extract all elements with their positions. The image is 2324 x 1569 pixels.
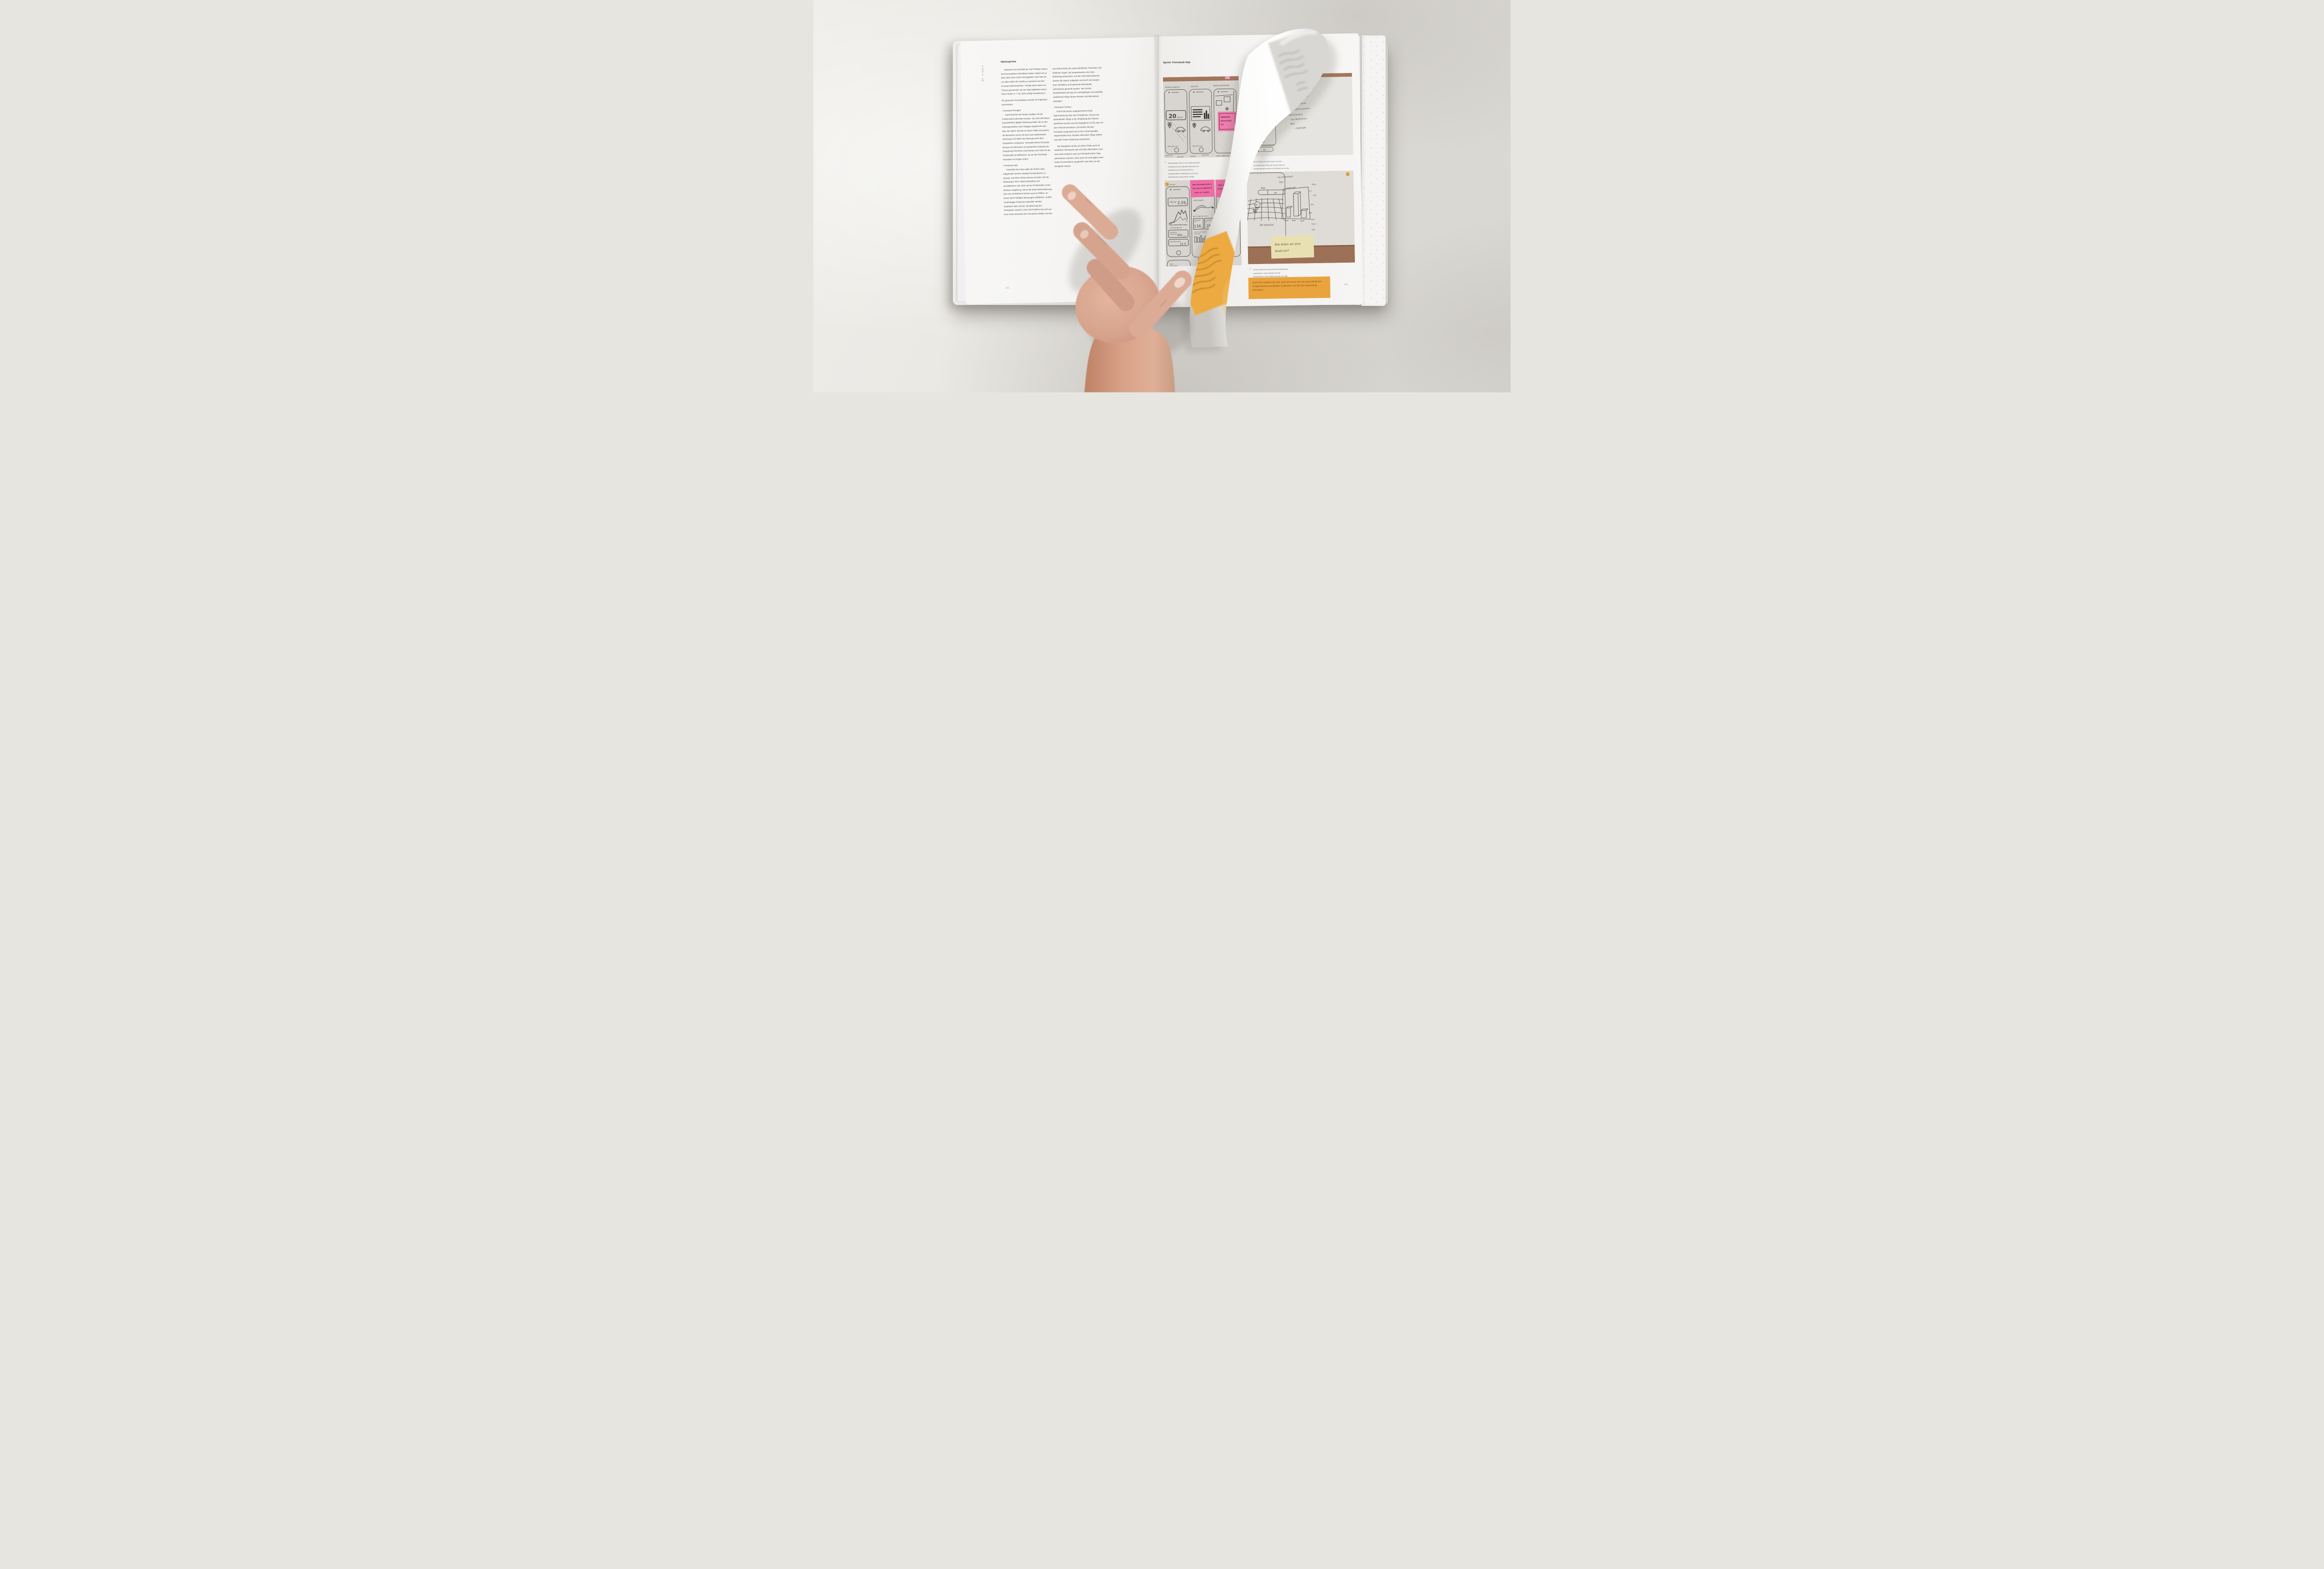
orange-pin xyxy=(1346,172,1349,176)
right-page-heading: Sprint: Feinstaub-App xyxy=(1163,61,1190,64)
sticky-text: ANALYSE xyxy=(1221,116,1230,118)
up-arrow-icon: ↑ xyxy=(1250,268,1251,271)
svg-text:CHALLENGE: CHALLENGE xyxy=(1170,265,1178,266)
svg-text:Stadt ein?: Stadt ein? xyxy=(1275,249,1289,253)
sketch-board-b: 30 Ortes · Umkreis Von 10– in Bsp. · gem… xyxy=(1245,73,1353,157)
svg-text:FEINSTAUB: FEINSTAUB xyxy=(1194,233,1201,235)
svg-text:DIESE WOCHE: DIESE WOCHE xyxy=(1194,199,1204,201)
pink-tab xyxy=(1225,76,1230,79)
svg-text:KM: KM xyxy=(1206,221,1207,223)
svg-text:● AUTO ● OHNE AUTO: ● AUTO ● OHNE AUTO xyxy=(1194,215,1208,217)
svg-text:Fein-: Fein- xyxy=(1312,223,1316,225)
sticky-text: -20 xyxy=(1220,123,1223,126)
sketch-label: AN SICHT xyxy=(1177,156,1183,158)
orange-pin xyxy=(1165,183,1169,186)
svg-text:25: 25 xyxy=(1207,224,1211,228)
svg-text:Mics: Mics xyxy=(1312,183,1316,185)
svg-text:15 €: 15 € xyxy=(1180,242,1186,245)
svg-text:Bsp.: Bsp. xyxy=(1287,99,1291,101)
sketch-label: KARTEN SWITCH/PIN xyxy=(1213,85,1229,87)
sketch-board-a: VISUELLE ANSICHT INFO PIN KARTEN SWITCH/… xyxy=(1163,76,1240,159)
sketch-label: STARTSCR. xyxy=(1165,155,1172,157)
svg-text:3D: 3D xyxy=(1274,192,1277,194)
corner-label: Konzept xyxy=(1169,184,1175,185)
svg-text:10: 10 xyxy=(1226,210,1229,213)
svg-text:300: 300 xyxy=(1177,234,1182,237)
left-book-page: 02 Create Ideensprints Nachdem wir inner… xyxy=(960,37,1160,305)
photo-3d-map-sketch: · Von Wohnheim Bild · challenge Mics m³ … xyxy=(1247,171,1355,265)
svg-text:Bild: Bild xyxy=(1279,181,1283,184)
svg-text:STRECKE: STRECKE xyxy=(1169,201,1176,203)
svg-text:– fre: – fre xyxy=(1309,203,1314,205)
svg-text:km: km xyxy=(1211,227,1213,229)
paragraph: Damit könnten die Nutzer häufiger mit de… xyxy=(1002,112,1051,162)
up-arrow-icon: ↑ xyxy=(1165,161,1166,165)
pink-sticky-note: Was wird getrackt & wie wird verglichen?… xyxy=(1190,179,1215,198)
3d-ansicht-label: 3D Ansicht xyxy=(1260,224,1274,227)
svg-text:Ortes: Ortes xyxy=(1281,85,1287,88)
svg-text:sho: sho xyxy=(1313,194,1317,196)
svg-text:km: km xyxy=(1185,203,1188,205)
paragraph: Durch die bereits angesprochene breite D… xyxy=(1053,109,1103,142)
photo-handwritten-notes: 30 Ortes · Umkreis Von 10– in Bsp. · gem… xyxy=(1245,73,1353,157)
svg-text:km: km xyxy=(1201,227,1202,229)
left-page-column-1: Nachdem wir innerhalb der Top Findings u… xyxy=(1001,67,1052,219)
left-page-column-2: und andererseits die unterschiedlichen P… xyxy=(1052,66,1104,171)
sketch-label: AR-SICHT xyxy=(1202,154,1208,156)
paragraph: Innerhalb einer App sollen die Nutzer da… xyxy=(1003,167,1052,217)
svg-text:berechnet?: berechnet? xyxy=(1218,188,1229,190)
pink-sticky-note xyxy=(1198,258,1211,266)
page-number-right: 185 xyxy=(1344,283,1348,285)
bubble-value: 20 xyxy=(1255,204,1258,206)
yellow-sticky-note: Wie teilen wir eine Stadt ein? xyxy=(1271,235,1314,258)
forearm xyxy=(1084,324,1175,392)
svg-text:FEINSTAUB: FEINSTAUB xyxy=(1170,233,1177,235)
svg-text:Bild: Bild xyxy=(1290,123,1294,126)
photo-wireframes-camera: VISUELLE ANSICHT INFO PIN KARTEN SWITCH/… xyxy=(1163,76,1240,159)
book-photo-scene: 02 Create Ideensprints Nachdem wir inner… xyxy=(813,0,1511,392)
highlight-box: Durch den Vergleich der Orte, kann der N… xyxy=(1248,277,1331,299)
unit: μm/m³ xyxy=(1177,116,1183,119)
left-page-heading: Ideensprints xyxy=(1001,60,1016,64)
book-spine-crease xyxy=(1153,35,1162,303)
pink-sticky-note: Tägl. Anzeige wie berechnet? xyxy=(1215,179,1239,198)
svg-text:KM: KM xyxy=(1195,221,1196,223)
photo-wireframes-stats: Konzept STRECKE 2,59 km xyxy=(1164,179,1241,267)
sketch-board-c: Konzept STRECKE 2,59 km xyxy=(1164,179,1241,267)
paragraph: und andererseits die unterschiedlichen P… xyxy=(1052,66,1103,104)
right-book-page: Sprint: Feinstaub-App VISUELLE ANSICHT I… xyxy=(1155,33,1363,308)
svg-text:m³: m³ xyxy=(1309,190,1312,192)
svg-text:○ FAHRRAD ● AUTO: ○ FAHRRAD ● AUTO xyxy=(1169,227,1182,229)
svg-text:MEHR PRODUZIERTER: MEHR PRODUZIERTER xyxy=(1194,232,1207,233)
svg-text:ERREICHTE: ERREICHTE xyxy=(1224,207,1230,209)
svg-text:das: das xyxy=(1312,228,1315,231)
page-number-left: 182 xyxy=(1005,286,1010,289)
svg-text:Tägl. Anzeige wie: Tägl. Anzeige wie xyxy=(1218,184,1235,186)
svg-text:GESPARTER: GESPARTER xyxy=(1170,232,1177,233)
caption-camera-mode: ↑ Kameramodus mit der Live-Visualisierun… xyxy=(1168,161,1201,179)
sketch-label: INFO PIN xyxy=(1191,86,1198,87)
svg-text:sind: sind xyxy=(1311,218,1315,220)
tabs-label: PM10 PM2.5 NOx xyxy=(1168,146,1178,147)
tabs-label: PM10 PM2.5 NOx xyxy=(1192,145,1203,147)
svg-text:136: 136 xyxy=(1194,224,1201,228)
dotted-endpaper xyxy=(1361,35,1386,306)
chapter-side-label: 02 Create xyxy=(981,65,984,81)
paragraph: Nachdem wir innerhalb der Top Findings u… xyxy=(1001,67,1050,96)
sketch-board-d: · Von Wohnheim Bild · challenge Mics m³ … xyxy=(1247,171,1355,265)
paragraph: Die Navigation könnte an dieser Stelle a… xyxy=(1054,144,1104,169)
sketch-label: VISUELLE ANSICHT xyxy=(1165,86,1180,89)
svg-text:Von: Von xyxy=(1308,212,1312,214)
sketch-label: VERGL. WERTE EU xyxy=(1216,155,1228,157)
svg-text:Map: Map xyxy=(1261,187,1266,190)
paragraph: Die gesamten Konzeptideen werden im Folg… xyxy=(1002,98,1050,107)
sketch-label: VISUELL xyxy=(1190,155,1196,157)
sticky-text: -BELASTUNG xyxy=(1220,120,1231,122)
svg-text:2,59: 2,59 xyxy=(1177,200,1186,205)
toggle-value: 30 xyxy=(1263,149,1266,151)
svg-text:μm/m³: μm/m³ xyxy=(1183,235,1187,237)
value-20: 20 xyxy=(1169,113,1176,119)
